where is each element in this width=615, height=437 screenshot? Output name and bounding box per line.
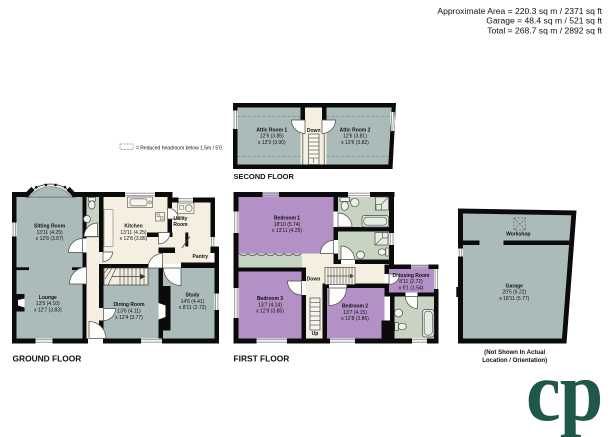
svg-text:x 12'8 (3.86): x 12'8 (3.86) (341, 316, 369, 322)
svg-text:Lounge: Lounge (39, 295, 57, 301)
svg-text:Garage: Garage (506, 283, 523, 289)
svg-text:x 12'6 (3.82): x 12'6 (3.82) (341, 140, 369, 146)
svg-text:Attic Room 2: Attic Room 2 (340, 127, 371, 133)
svg-text:13'11 (4.25): 13'11 (4.25) (37, 230, 63, 236)
svg-text:Bedroom 3: Bedroom 3 (257, 296, 283, 302)
svg-text:Attic Room 1: Attic Room 1 (256, 127, 287, 133)
svg-text:Workshop: Workshop (506, 231, 530, 237)
svg-text:8'11 (2.72): 8'11 (2.72) (399, 279, 423, 285)
svg-text:Down: Down (307, 128, 321, 134)
svg-text:12'6 (3.81): 12'6 (3.81) (343, 134, 367, 140)
svg-text:18'10 (5.74): 18'10 (5.74) (274, 222, 301, 228)
svg-text:13'11 (4.25): 13'11 (4.25) (120, 230, 146, 236)
svg-text:13'7 (4.14): 13'7 (4.14) (258, 302, 282, 308)
svg-text:20'5 (6.22): 20'5 (6.22) (502, 290, 526, 296)
svg-text:FIRST FLOOR: FIRST FLOOR (234, 353, 290, 363)
svg-text:Bedroom 2: Bedroom 2 (342, 304, 368, 310)
svg-text:Room: Room (173, 222, 188, 228)
svg-text:Bedroom 1: Bedroom 1 (274, 216, 300, 222)
svg-text:x 12'4 (3.77): x 12'4 (3.77) (115, 315, 143, 321)
svg-text:Approximate Area = 220.3 sq m: Approximate Area = 220.3 sq m / 2371 sq … (437, 6, 602, 16)
svg-text:Sitting Room: Sitting Room (34, 224, 66, 230)
svg-text:Dining Room: Dining Room (113, 302, 145, 308)
svg-text:SECOND FLOOR: SECOND FLOOR (234, 172, 295, 181)
svg-text:x 12'9 (3.90): x 12'9 (3.90) (258, 140, 286, 146)
svg-text:Up: Up (312, 331, 319, 337)
svg-text:x 12'8 (3.87): x 12'8 (3.87) (36, 236, 64, 242)
svg-text:Study: Study (186, 293, 200, 299)
svg-text:Garage = 48.4 sq m / 521 sq ft: Garage = 48.4 sq m / 521 sq ft (486, 16, 602, 26)
svg-text:Utility: Utility (174, 216, 188, 222)
svg-text:cp: cp (526, 344, 602, 437)
svg-text:13'5 (4.10): 13'5 (4.10) (36, 301, 60, 307)
svg-text:x 5'1 (1.54): x 5'1 (1.54) (399, 285, 424, 291)
svg-text:GROUND FLOOR: GROUND FLOOR (13, 353, 82, 363)
svg-text:14'6 (4.41): 14'6 (4.41) (181, 299, 205, 305)
svg-text:13'7 (4.15): 13'7 (4.15) (343, 310, 367, 316)
svg-text:12'9 (3.85): 12'9 (3.85) (260, 134, 284, 140)
svg-text:Pantry: Pantry (193, 254, 209, 260)
svg-text:13'6 (4.11): 13'6 (4.11) (117, 309, 141, 315)
svg-text:Kitchen: Kitchen (124, 224, 142, 230)
svg-text:x 12'7 (3.83): x 12'7 (3.83) (34, 308, 62, 314)
svg-text:x 12'9 (3.85): x 12'9 (3.85) (256, 309, 284, 315)
svg-text:x 13'11 (4.25): x 13'11 (4.25) (272, 228, 302, 234)
svg-text:= Reduced headroom below 1.5m: = Reduced headroom below 1.5m / 5'0 (136, 145, 222, 151)
svg-text:Total = 268.7 sq m / 2892 sq f: Total = 268.7 sq m / 2892 sq ft (487, 25, 602, 35)
svg-text:x 12'8 (3.85): x 12'8 (3.85) (120, 236, 148, 242)
svg-text:Dressing Room: Dressing Room (393, 273, 431, 279)
svg-text:x 18'11 (5.77): x 18'11 (5.77) (499, 296, 529, 302)
svg-text:x 8'11 (2.72): x 8'11 (2.72) (179, 305, 207, 311)
svg-text:Down: Down (307, 277, 321, 283)
